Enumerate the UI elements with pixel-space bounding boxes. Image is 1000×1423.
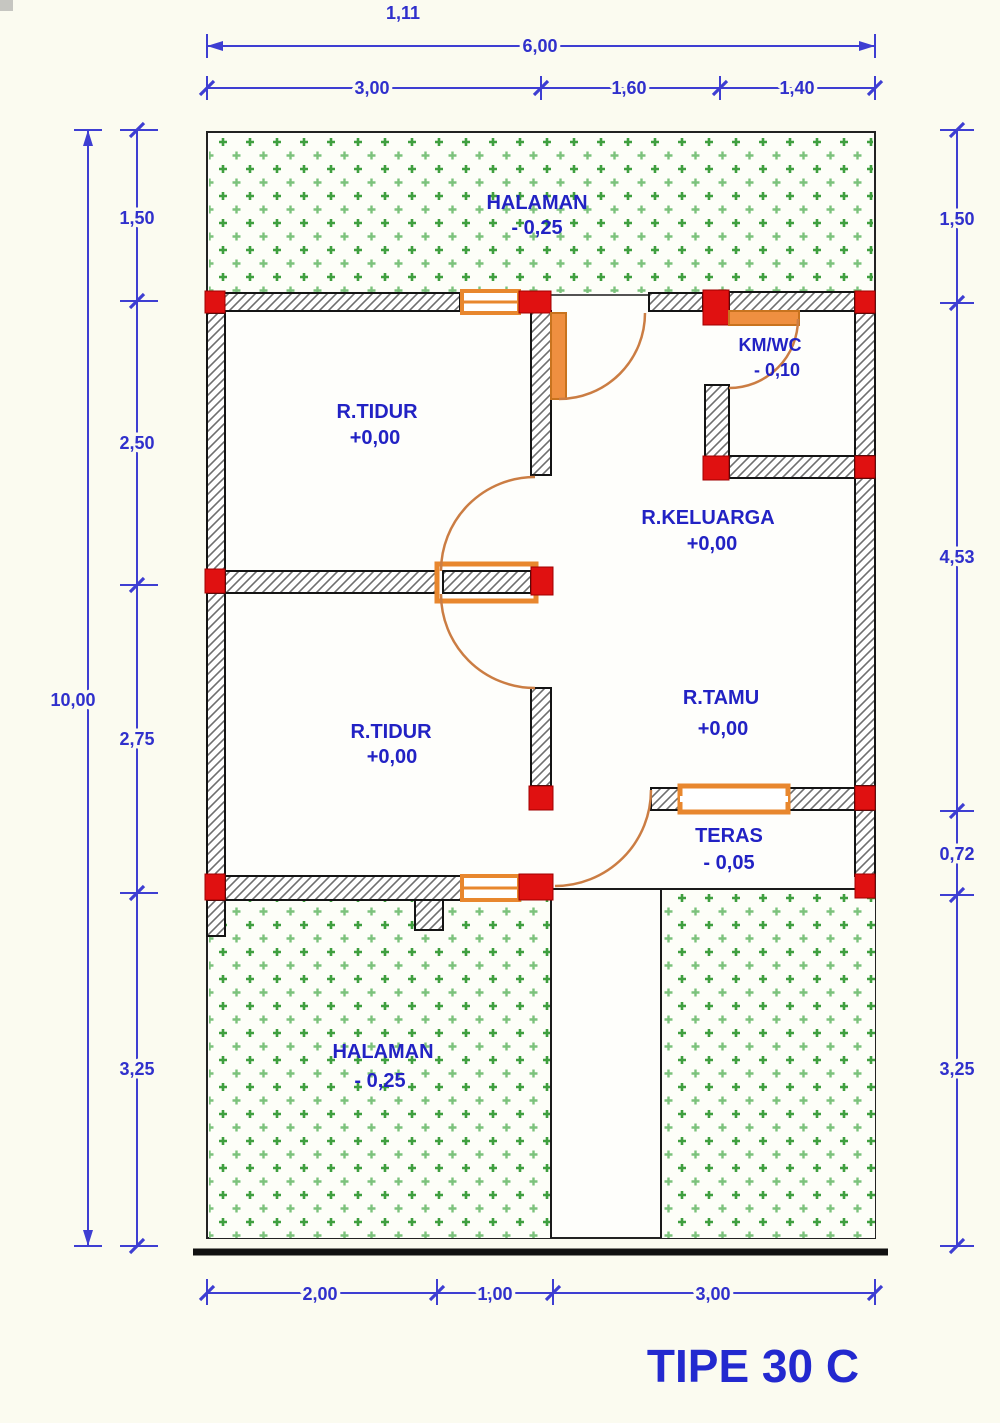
wall-top-left — [207, 293, 460, 311]
dim-right-seg4: 3,25 — [939, 1059, 974, 1079]
column-bottom-left — [205, 874, 225, 900]
door-entry-leaf — [551, 313, 566, 399]
wall-bottom-stub — [415, 900, 443, 930]
scan-artifact — [0, 0, 13, 11]
dim-left-seg1: 1,50 — [119, 208, 154, 228]
back-yard-right-area — [661, 890, 875, 1238]
column-kmwc-bottom-left — [703, 456, 729, 480]
dim-top-seg1: 3,00 — [354, 78, 389, 98]
dim-top-offset: 1,11 — [386, 3, 420, 23]
dim-top-total: 6,00 — [522, 36, 557, 56]
wall-hall-upper — [531, 311, 551, 475]
column-kmwc-bottom-right — [855, 456, 875, 478]
wall-right-lower — [855, 810, 875, 876]
room-tamu-level: +0,00 — [698, 718, 749, 740]
column-teras-left — [529, 786, 553, 810]
dim-left-total: 10,00 — [50, 690, 95, 710]
room-tidur2-name: R.TIDUR — [350, 721, 432, 743]
dim-right-seg3: 0,72 — [939, 844, 974, 864]
room-halaman-top-name: HALAMAN — [486, 192, 587, 214]
wall-right-upper — [855, 313, 875, 456]
room-kmwc-level: - 0,10 — [754, 360, 800, 380]
dim-bottom-seg2: 1,00 — [477, 1284, 512, 1304]
room-halaman-bottom-name: HALAMAN — [332, 1041, 433, 1063]
dim-left-seg4: 3,25 — [119, 1059, 154, 1079]
dim-right-seg2: 4,53 — [939, 547, 974, 567]
room-keluarga-level: +0,00 — [687, 533, 738, 555]
dim-bottom-seg1: 2,00 — [302, 1284, 337, 1304]
lintel-hall-core — [443, 571, 531, 593]
dim-right-seg1: 1,50 — [939, 209, 974, 229]
wall-teras-left — [651, 788, 680, 810]
room-halaman-top-level: - 0,25 — [511, 217, 562, 239]
column-top-right — [855, 291, 875, 313]
floor-plan-svg: 1,11 6,00 3,00 1,60 1,40 10,00 1,50 2,50… — [0, 0, 1000, 1423]
wall-hall-lower — [531, 688, 551, 786]
dim-top-seg2: 1,60 — [611, 78, 646, 98]
wall-left-stub — [207, 900, 225, 936]
dim-left-seg3: 2,75 — [119, 729, 154, 749]
floor-plan-page: 1,11 6,00 3,00 1,60 1,40 10,00 1,50 2,50… — [0, 0, 1000, 1423]
column-bottom-mid — [519, 874, 553, 900]
wall-bottom — [225, 876, 462, 900]
room-tidur1-level: +0,00 — [350, 427, 401, 449]
wall-top-middle — [649, 293, 703, 311]
dim-top-seg3: 1,40 — [779, 78, 814, 98]
plan-title: TIPE 30 C — [647, 1340, 859, 1392]
column-top-entry — [519, 291, 551, 313]
column-teras-right — [855, 786, 875, 810]
room-tidur2-level: +0,00 — [367, 746, 418, 768]
room-halaman-bottom-level: - 0,25 — [354, 1070, 405, 1092]
room-teras-level: - 0,05 — [703, 852, 754, 874]
dim-left-seg2: 2,50 — [119, 433, 154, 453]
room-teras-name: TERAS — [695, 825, 763, 847]
column-top-left — [205, 291, 225, 313]
door-kmwc-leaf — [729, 311, 799, 325]
room-kmwc-name: KM/WC — [739, 335, 802, 355]
column-hall-mid — [531, 567, 553, 595]
room-keluarga-name: R.KELUARGA — [641, 507, 774, 529]
dim-bottom-seg3: 3,00 — [695, 1284, 730, 1304]
column-kmwc-top — [703, 290, 729, 325]
room-tidur1-name: R.TIDUR — [336, 401, 418, 423]
wall-kmwc-bottom — [729, 456, 855, 478]
column-left-mid — [205, 569, 225, 593]
room-tamu-name: R.TAMU — [683, 687, 759, 709]
back-yard-left-area — [209, 898, 550, 1238]
wall-left-lower — [207, 593, 225, 876]
wall-mid-bedrooms — [225, 571, 437, 593]
wall-left-upper — [207, 313, 225, 571]
wall-top-right — [729, 292, 855, 311]
column-bottom-right — [855, 874, 875, 898]
wall-teras-right — [788, 788, 855, 810]
wall-right-middle — [855, 478, 875, 786]
